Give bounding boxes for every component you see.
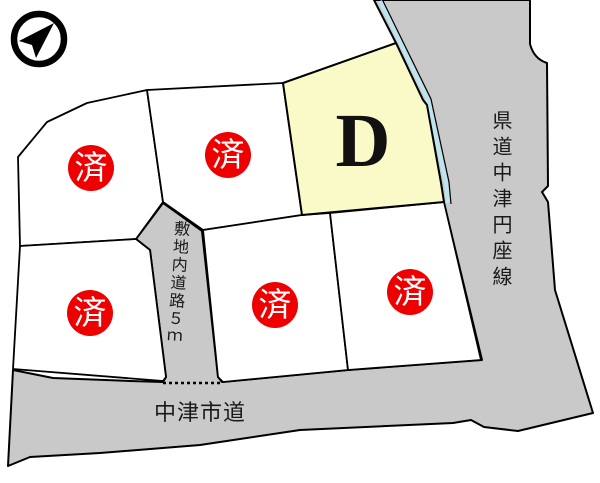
sold-badge-lot-4: 済 [252,282,298,328]
sold-badge-lot-1: 済 [68,145,114,191]
sold-badge-lot-5: 済 [387,269,433,315]
prefectural-road-label: 県道中津円座線 [489,110,515,310]
north-arrow-icon [8,8,70,70]
sold-badge-lot-2: 済 [205,132,251,178]
lot-d-label: D [303,98,423,184]
lot-map: 済 済 済 済 済 D 県道中津円座線 敷地内道路５ｍ 中津市道 [0,0,600,483]
sold-badge-lot-3: 済 [67,290,113,336]
city-road-label: 中津市道 [140,400,260,426]
